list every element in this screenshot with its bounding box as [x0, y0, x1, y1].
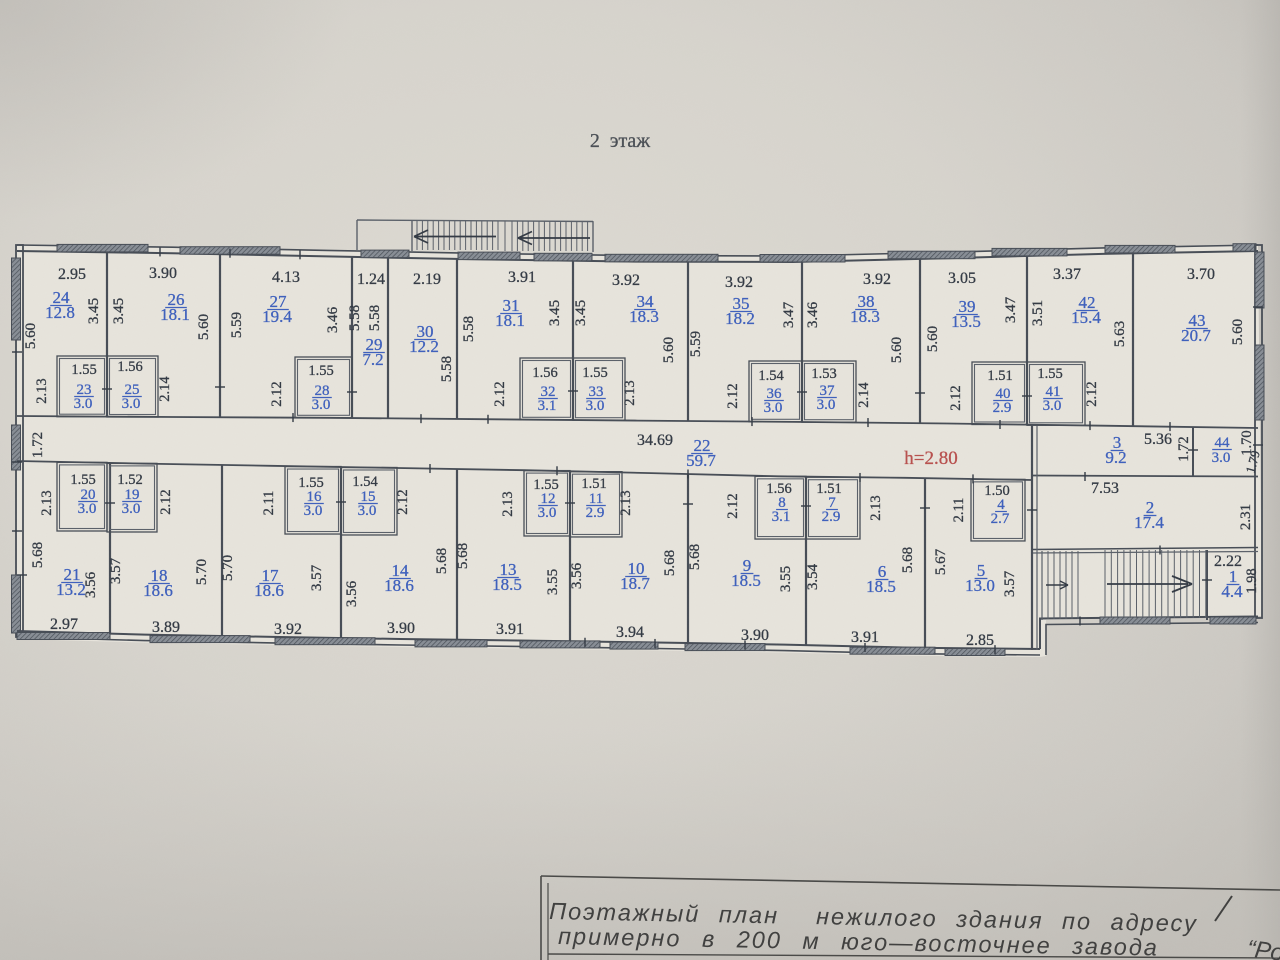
svg-text:“Рог: “Рог: [1245, 935, 1280, 960]
